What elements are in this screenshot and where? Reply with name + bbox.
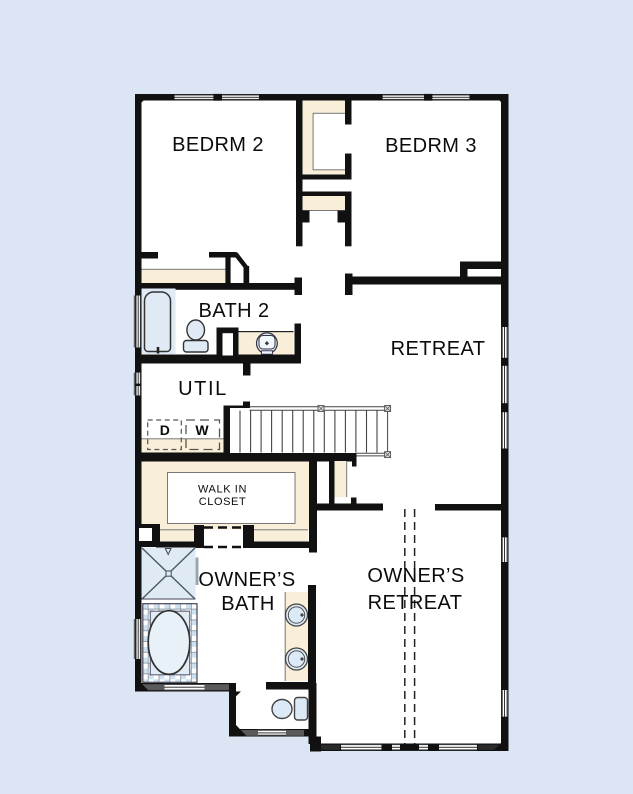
svg-text:RETREAT: RETREAT <box>391 338 486 360</box>
svg-text:BATH: BATH <box>221 593 274 615</box>
svg-text:OWNER’S: OWNER’S <box>198 569 295 591</box>
svg-text:RETREAT: RETREAT <box>368 592 463 614</box>
svg-text:WALK IN: WALK IN <box>198 484 247 496</box>
svg-text:OWNER’S: OWNER’S <box>367 565 464 587</box>
svg-text:D: D <box>160 422 170 438</box>
svg-text:W: W <box>195 422 209 438</box>
svg-text:UTIL: UTIL <box>178 378 228 400</box>
svg-text:CLOSET: CLOSET <box>199 496 247 508</box>
svg-text:BEDRM 3: BEDRM 3 <box>385 135 477 157</box>
svg-text:BEDRM 2: BEDRM 2 <box>172 134 264 156</box>
svg-text:BATH 2: BATH 2 <box>199 300 270 322</box>
